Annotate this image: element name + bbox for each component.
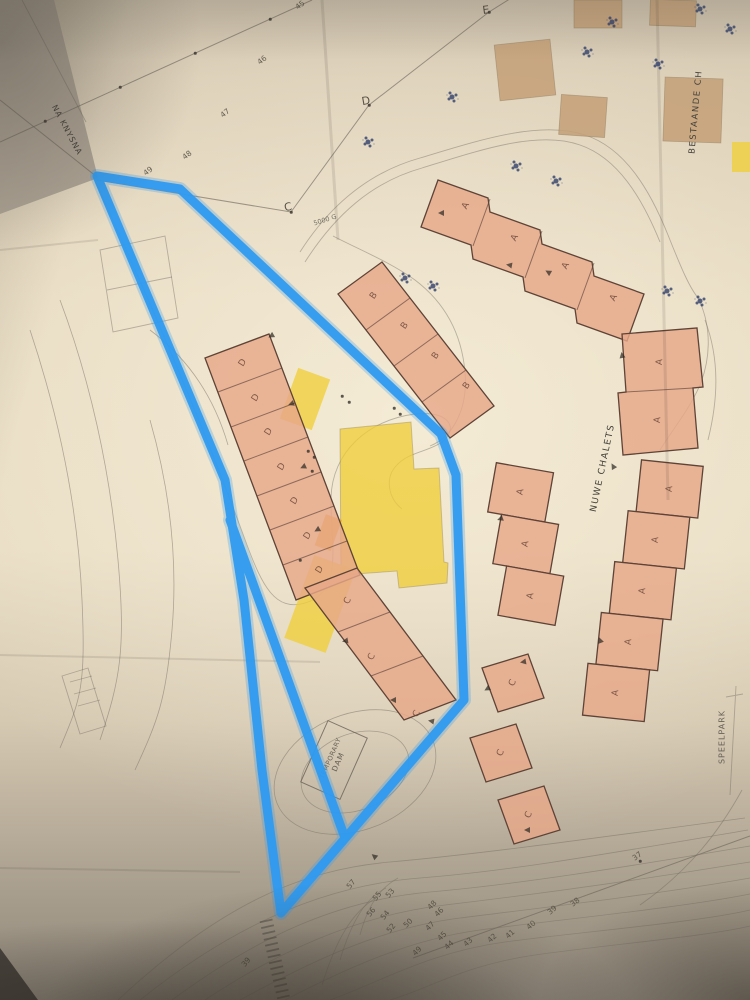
building-unit-letter: D xyxy=(289,495,301,506)
contour-elevation-label: 47 xyxy=(423,919,436,932)
survey-dot xyxy=(290,211,293,214)
building-unit-letter: C xyxy=(523,810,535,820)
contour-elevation-label: 56 xyxy=(364,905,377,918)
entrance-arrow xyxy=(506,262,513,269)
tree-symbol xyxy=(585,50,590,55)
building-unit-letter: A xyxy=(665,485,676,492)
contour-elevation-label: 49 xyxy=(410,944,423,957)
survey-dot xyxy=(488,11,491,14)
survey-dot xyxy=(368,104,371,107)
building-unit-letter: A xyxy=(516,488,527,496)
entrance-arrow xyxy=(428,718,435,725)
tree-symbol xyxy=(366,140,371,145)
tree-symbol xyxy=(665,289,670,294)
building-unit-letter: C xyxy=(507,678,519,688)
survey-dot xyxy=(348,401,351,404)
na-knysna-label: NA KNYSNA xyxy=(50,103,84,156)
entrance-arrow xyxy=(609,462,617,470)
building-unit-letter: A xyxy=(653,416,663,423)
tree-symbol xyxy=(728,27,733,32)
entrance-arrow xyxy=(438,210,444,216)
bestaande-chalets-label: BESTAANDE CH xyxy=(687,70,704,155)
building-unit-letter: C xyxy=(366,652,378,662)
contour-elevation-label: 38 xyxy=(568,896,581,909)
building-unit-letter: B xyxy=(461,381,473,392)
survey-dot xyxy=(269,18,272,21)
building-unit-letter: A xyxy=(624,638,635,645)
building-unit-letter: A xyxy=(638,587,649,594)
building-unit-letter: D xyxy=(276,461,288,472)
building-unit-letter: A xyxy=(611,689,622,696)
contour-elevation-label: 47 xyxy=(218,107,231,120)
tree-symbol xyxy=(698,7,703,12)
tree-symbol xyxy=(431,284,436,289)
tree-symbol xyxy=(610,20,615,25)
survey-dot xyxy=(299,559,302,562)
building-unit-letter: D xyxy=(263,426,275,437)
building-unit-letter: B xyxy=(430,351,442,362)
building-unit-letter: C xyxy=(411,709,423,719)
building-unit-letter: B xyxy=(368,291,380,302)
entrance-arrow xyxy=(520,659,527,666)
contour-elevation-label: 40 xyxy=(524,918,537,931)
contour-elevation-label: 44 xyxy=(442,938,455,951)
dam-label-box: TEMPORARY DAM xyxy=(300,720,368,800)
building-unit-letter: D xyxy=(250,392,262,403)
survey-dot xyxy=(311,470,314,473)
tree-symbol xyxy=(698,299,703,304)
entrance-arrow xyxy=(496,515,504,523)
building-unit-letter: A xyxy=(460,201,472,211)
building-unit-letter: A xyxy=(560,261,572,271)
entrance-arrow xyxy=(483,685,491,693)
site-plan-photo: NA KNYSNA BESTAANDE CH NUWE CHALETS SPEE… xyxy=(0,0,750,1000)
contour-elevation-label: 39 xyxy=(545,903,558,916)
building-unit-letter: D xyxy=(314,564,326,575)
tree-symbol xyxy=(514,164,519,169)
survey-dot xyxy=(119,86,122,89)
survey-dot xyxy=(399,413,402,416)
contour-elevation-label: 45 xyxy=(293,0,306,11)
contour-elevation-label: 55 xyxy=(370,889,383,902)
entrance-arrow xyxy=(313,526,321,534)
entrance-arrow xyxy=(299,463,307,471)
building-unit-letter: A xyxy=(608,293,620,303)
survey-dot xyxy=(194,52,197,55)
building-unit-letter: D xyxy=(302,530,314,541)
entrance-arrow xyxy=(370,852,378,860)
entrance-arrow xyxy=(287,400,295,408)
entrance-arrow xyxy=(596,636,604,644)
contour-elevation-label: 43 xyxy=(461,935,474,948)
contour-elevation-label: 50 xyxy=(401,916,414,929)
building-unit-letter: A xyxy=(526,592,537,600)
capacity-annotation: 5000 G xyxy=(313,213,338,228)
survey-dot xyxy=(393,407,396,410)
entrance-arrow xyxy=(390,697,396,703)
contour-elevation-label: 54 xyxy=(378,908,391,921)
survey-dot xyxy=(341,395,344,398)
building-unit-letter: C xyxy=(495,748,507,758)
contour-elevation-label: 39 xyxy=(239,955,252,968)
speelpark-label: SPEELPARK xyxy=(718,710,727,764)
survey-dot xyxy=(44,120,47,123)
building-unit-letter: B xyxy=(399,321,411,332)
contour-elevation-label: 57 xyxy=(344,877,357,890)
contour-elevation-label: 37 xyxy=(630,850,643,863)
contour-elevation-label: 41 xyxy=(503,927,516,940)
entrance-arrow xyxy=(342,638,349,645)
entrance-arrow xyxy=(267,332,275,340)
building-unit-letter: A xyxy=(509,233,521,243)
survey-dot xyxy=(313,456,316,459)
building-unit-letter: A xyxy=(521,540,532,548)
survey-dot xyxy=(639,860,642,863)
tree-symbol xyxy=(656,62,661,67)
entrance-arrow xyxy=(544,268,552,276)
label-layer: NA KNYSNA BESTAANDE CH NUWE CHALETS SPEE… xyxy=(0,0,750,1000)
survey-dot xyxy=(307,450,310,453)
building-unit-letter: C xyxy=(342,596,354,606)
contour-elevation-label: 42 xyxy=(485,931,498,944)
entrance-arrow xyxy=(524,827,530,833)
tree-symbol xyxy=(554,179,559,184)
contour-elevation-label: 46 xyxy=(255,54,268,67)
tree-symbol xyxy=(450,95,455,100)
contour-elevation-label: 52 xyxy=(384,921,397,934)
building-unit-letter: D xyxy=(237,357,249,368)
building-unit-letter: A xyxy=(655,358,665,365)
tree-symbol xyxy=(403,276,408,281)
contour-elevation-label: 49 xyxy=(141,165,154,178)
contour-elevation-label: 48 xyxy=(180,149,193,162)
building-unit-letter: A xyxy=(651,536,662,543)
contour-elevation-label: 53 xyxy=(383,886,396,899)
entrance-arrow xyxy=(619,352,626,359)
